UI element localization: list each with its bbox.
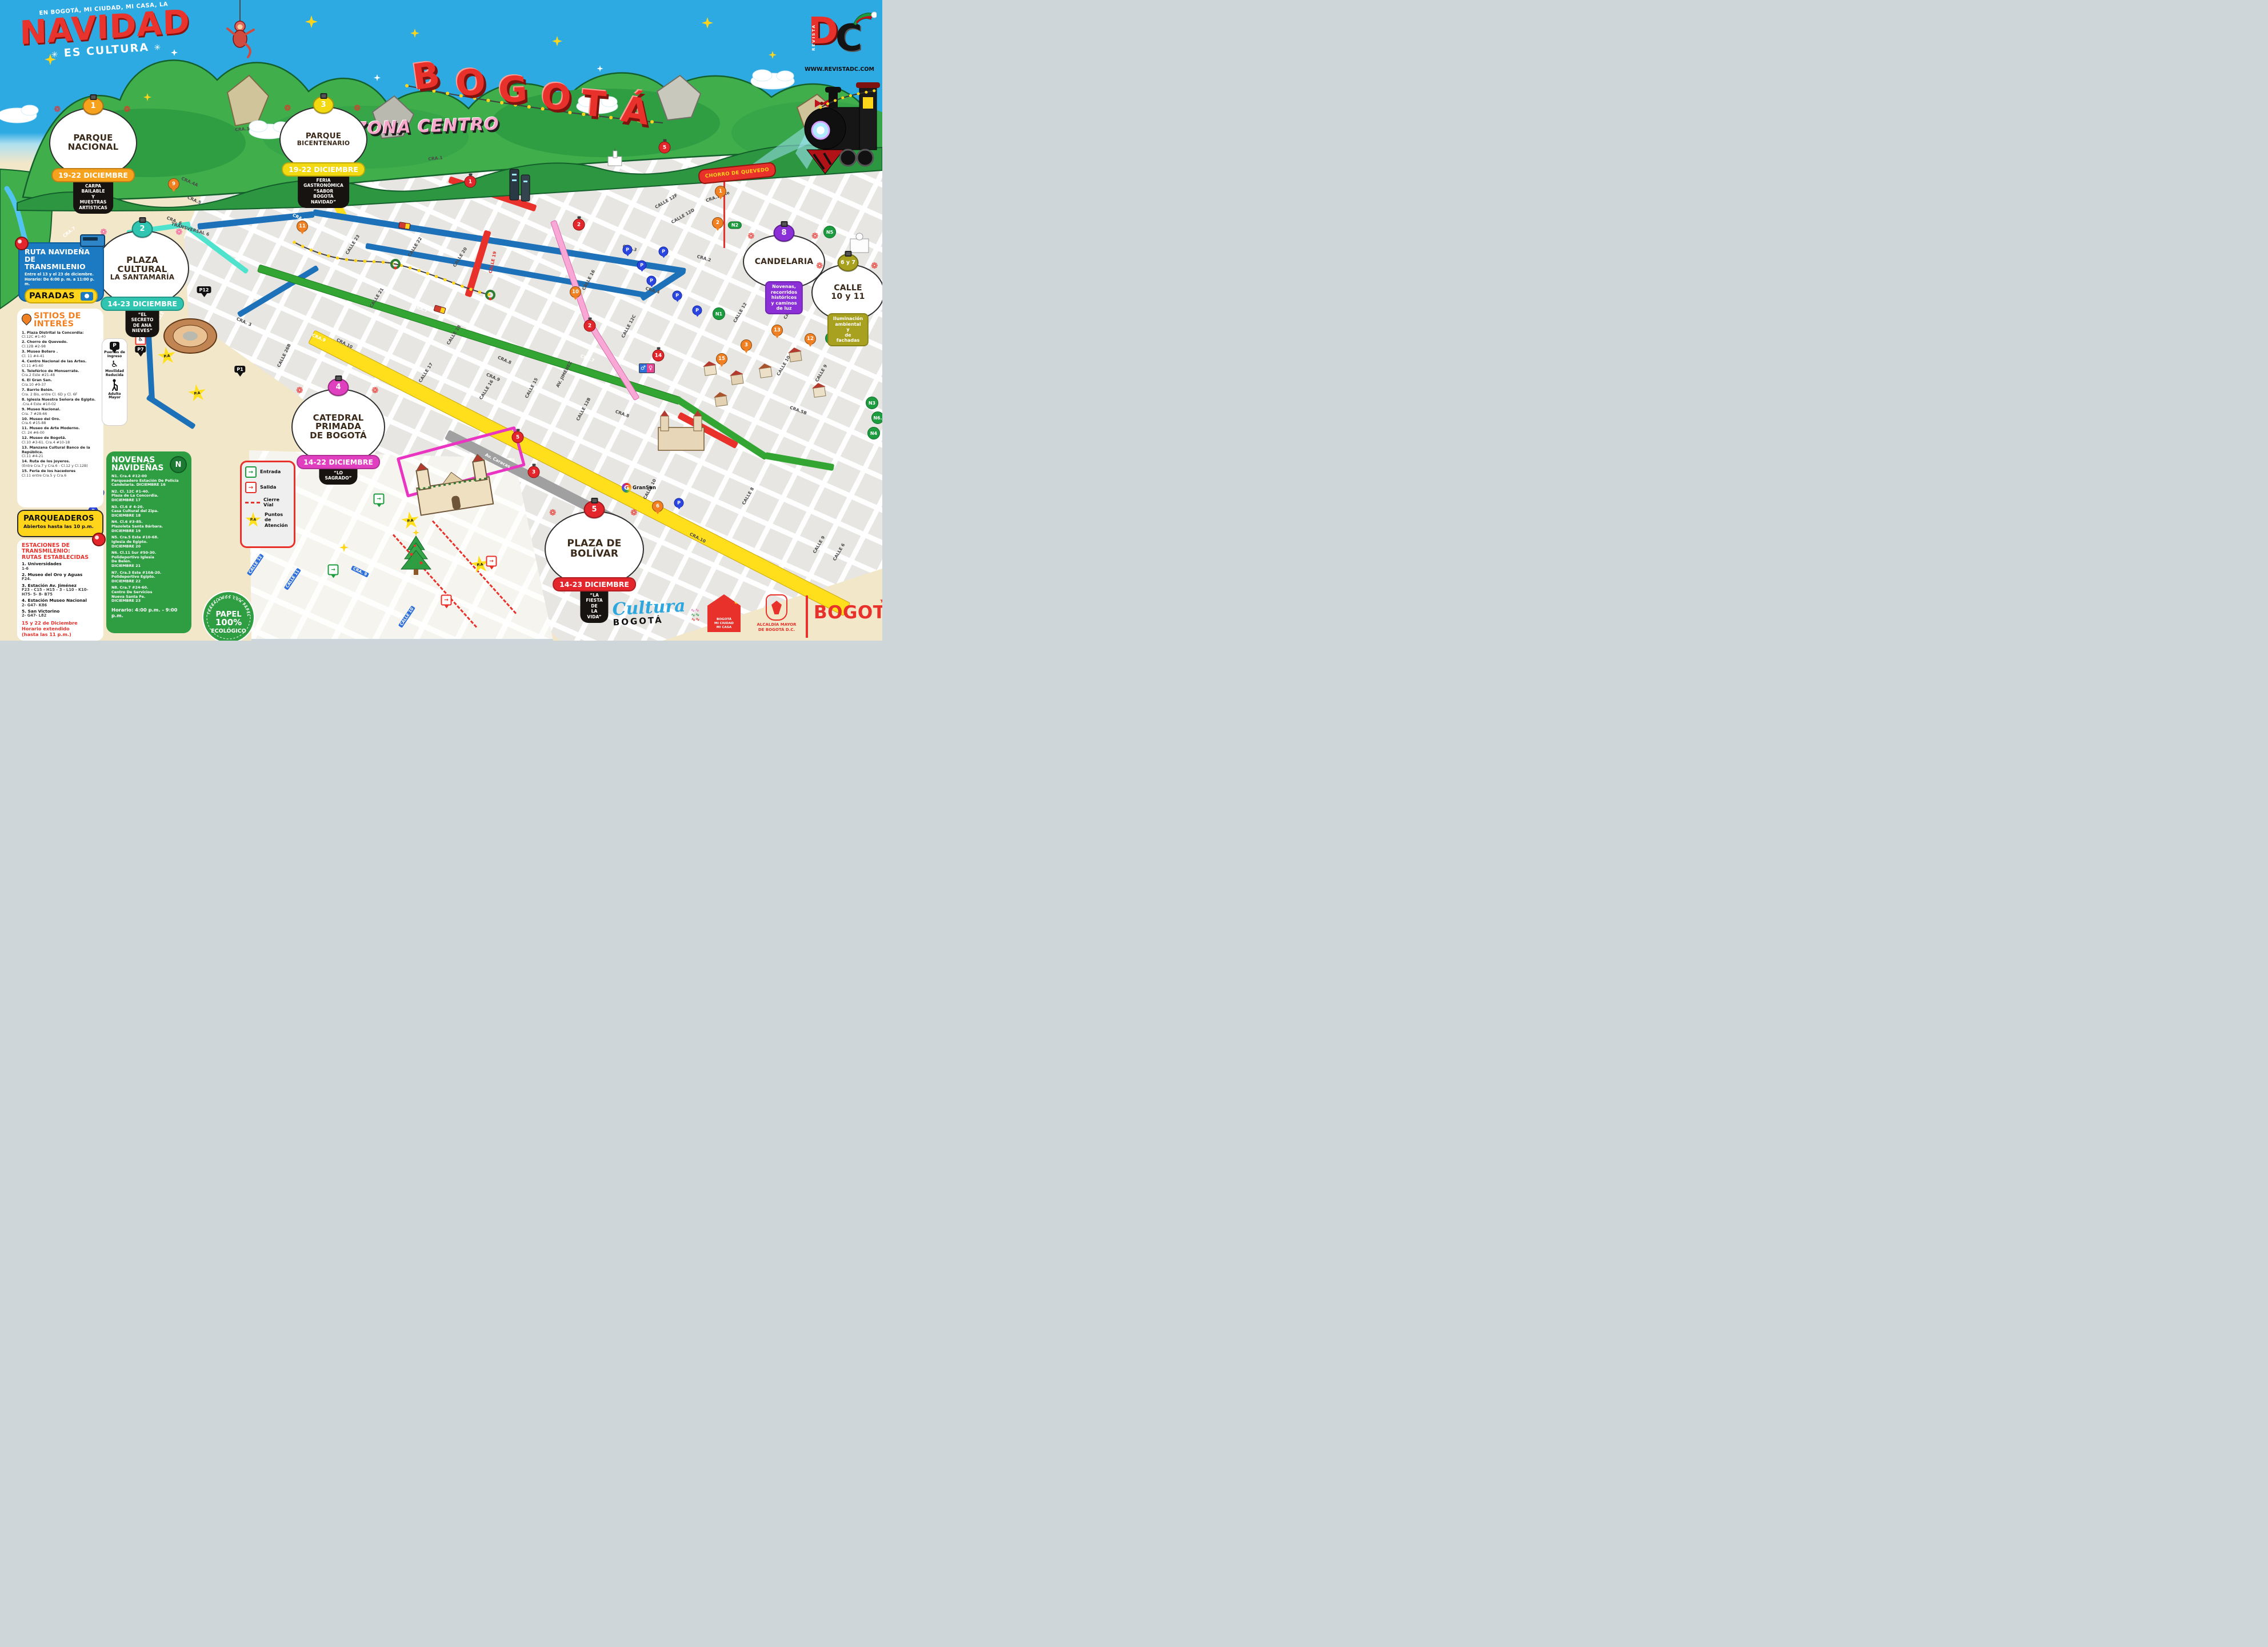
sitio-item: 5. Teleférico de Monserrate.Cra.2 Este #… (22, 369, 99, 378)
novena-badge-icon: N (170, 456, 187, 473)
sitios-list: 1. Plaza Distrital la Concordia:Cl.12C #… (22, 331, 99, 478)
ruta-schedule: Entre el 13 y el 23 de diciembre. Horari… (25, 272, 98, 286)
revista-vertical-text: REVISTA (811, 24, 816, 51)
bus-stop-icon (81, 292, 93, 301)
sitio-item: 14. Ruta de los joyeros.(Entre Cra.7 y C… (22, 459, 99, 468)
event-title-line: 10 y 11 (831, 293, 865, 301)
sparkle-icon: ✳ (154, 43, 162, 53)
event-date-pill: 14-22 DICIEMBRE (297, 455, 380, 469)
estacion-item: 4. Estación Museo Nacional2- G47- K86 (22, 598, 99, 607)
sitio-item: 11. Museo de Arte Moderno.Cl. 24 #6-00 (22, 426, 99, 435)
event-date-pill: 19-22 DICIEMBRE (282, 162, 365, 177)
sitio-item: 9. Museo Nacional.Cra. 7 #28-66 (22, 407, 99, 416)
poinsettia-icon: ❁ (630, 507, 638, 518)
sitio-item: 2. Chorro de Quevedo.Cl.12B #2-98 (22, 340, 99, 349)
event-bubble: CALLE10 y 11 (811, 264, 882, 321)
estacion-item: 3. Estación Av. JiménezF23 - C15 - H15 –… (22, 583, 99, 597)
poinsettia-icon: ❁ (371, 385, 379, 395)
sitios-de-interes-panel: SITIOS DE INTERÉS 1. Plaza Distrital la … (17, 309, 103, 507)
novena-item: N5. Cra.5 Este #10-68. Iglesia de Egipto… (111, 535, 186, 549)
event-title-line: CANDELARIA (755, 258, 814, 266)
sitio-item: 1. Plaza Distrital la Concordia:Cl.12C #… (22, 331, 99, 339)
event-date-pill: 19-22 DICIEMBRE (51, 168, 135, 182)
poinsettia-icon: ❁ (549, 507, 557, 518)
novenas-horario: Horario: 4:00 p.m. - 9:00 p.m. (111, 607, 186, 618)
puntos-label: Puntos de Atención (265, 512, 290, 528)
poinsettia-icon: ❁ (811, 231, 819, 241)
sitio-item: 8. Iglesia Nuestra Señora de Egipto..Cra… (22, 398, 99, 406)
estacion-item: 2. Museo del Oro y AguasF24. (22, 573, 99, 582)
event-number-badge: 2 (132, 220, 153, 238)
ornament-icon (92, 533, 106, 546)
sitio-item: 13. Manzana Cultural Banco de la Repúbli… (22, 446, 99, 459)
event-banner: Iluminación ambiental y de fachadas (827, 313, 869, 346)
paradas-pill: PARADAS (25, 289, 98, 303)
novena-item: N3. Cl.6 # 4-20. Casa Cultural del Zipa.… (111, 505, 186, 518)
wheelchair-icon: ♿ (111, 360, 118, 369)
entrada-label: Entrada (260, 469, 281, 474)
crest-icon (766, 594, 787, 621)
event-bubble: PLAZACULTURALLA SANTAMARÍA (95, 230, 189, 307)
squiggles-icon: ∿∿∿∿∿∿ (691, 608, 700, 622)
sitio-item: 15. Feria de los hacedoresCl.11 entre Cr… (22, 469, 99, 478)
movilidad-label: Movilidad Reducida (105, 370, 124, 378)
estaciones-panel: ESTACIONES DE TRANSMILENIO: RUTAS ESTABL… (17, 539, 103, 641)
event-number-badge: 3 (313, 96, 334, 114)
event-date-pill: 14-23 DICIEMBRE (553, 577, 636, 591)
estaciones-list: 1. Universidades1-62. Museo del Oro y Ag… (22, 562, 99, 618)
parqueaderos-subtitle: Abiertos hasta las 10 p.m. (23, 523, 97, 529)
ornament-icon (15, 237, 29, 250)
salida-label: Salida (260, 485, 276, 490)
novenas-panel: N NOVENAS NAVIDEÑAS N1. Cra.4 #12-00 Par… (106, 451, 191, 633)
event-banner: Novenas, recorridos históricos y caminos… (765, 281, 803, 314)
event-title-line: DE BOGOTÁ (310, 431, 367, 441)
adulto-label: Adulto Mayor (108, 393, 121, 401)
event-bubble: CATEDRALPRIMADADE BOGOTÁ (291, 389, 385, 465)
eco-stamp: TRABAJAMOS CON PAPEL RECICLADO PAPEL 100… (201, 590, 256, 641)
elf-hat-icon (851, 10, 877, 27)
parking-pin-icon: P (110, 342, 119, 350)
poinsettia-icon: ❁ (54, 104, 61, 114)
sitio-item: 10. Museo del Oro.Cra.6 #15-88 (22, 417, 99, 426)
sitio-item: 3. Museo Botero .Cl. 11 #4-41 (22, 350, 99, 358)
bus-illustration (80, 234, 105, 247)
event-number-badge: 1 (83, 97, 104, 115)
ruta-title: RUTA NAVIDEÑA DE TRANSMILENIO (25, 248, 98, 270)
accesos-panel: P Puertas de Ingreso ♿ Movilidad Reducid… (102, 338, 127, 426)
event-title-line: CALLE (834, 284, 862, 293)
eco-line2: 100% (215, 617, 242, 627)
event-desc-bar: FERIA GASTRONÓMICA “SABOR BOGOTÁ NAVIDAD… (298, 175, 349, 208)
alcaldia-mayor-logo: ALCALDÍA MAYOR DE BOGOTÁ D.C. (754, 594, 799, 633)
entrada-icon: → (245, 466, 257, 478)
novena-item: N2. Cl. 12C #1-40. Plaza de La Concordia… (111, 490, 186, 503)
sitio-item: 4. Centro Nacional de las Artes.Cl.11 #5… (22, 359, 99, 368)
poinsettia-icon: ❁ (816, 261, 823, 271)
cierre-vial-label: Cierre Víal (263, 497, 279, 508)
event-title-line: PARQUE (306, 132, 341, 140)
estaciones-title: ESTACIONES DE TRANSMILENIO: RUTAS ESTABL… (22, 543, 99, 561)
poinsettia-icon: ❁ (123, 104, 131, 114)
poinsettia-icon: ❁ (175, 227, 183, 237)
poinsettia-icon: ❁ (354, 103, 361, 113)
estacion-item: 1. Universidades1-6 (22, 562, 99, 571)
event-bubble: PLAZA DEBOLÍVAR (545, 511, 644, 587)
parqueaderos-title: PARQUEADEROS (23, 514, 97, 523)
salida-icon: → (245, 482, 257, 493)
event-number-badge: 5 (584, 501, 605, 518)
event-title-line: BOLÍVAR (570, 549, 618, 559)
cierre-vial-icon (245, 502, 260, 503)
event-number-badge: 6 y 7 (838, 254, 859, 271)
event-date-pill: 14-23 DICIEMBRE (101, 297, 184, 311)
estacion-item: 5. San Victorino2- G47- L82 (22, 609, 99, 618)
logo-divider (806, 595, 808, 638)
bogota-logo: BOGOTÁ (814, 602, 882, 623)
cultura-bogota-logo: Cultura BOGOTÁ ∿∿∿∿∿∿ (612, 598, 686, 628)
novena-item: N7. Cra.3 Este #10A-20. Polideportivo Eg… (111, 571, 186, 584)
map-pin-icon (19, 311, 33, 325)
sitio-item: 6. El Gran San.Cra.10 #9-37 (22, 378, 99, 387)
poinsettia-icon: ❁ (747, 231, 755, 241)
estaciones-note: 15 y 22 de Diciembre Horario extendido (… (22, 621, 99, 638)
parqueaderos-panel: PARQUEADEROS Abiertos hasta las 10 p.m. (17, 510, 103, 537)
punto-atencion-icon: P.A (245, 512, 261, 528)
event-title-line: LA SANTAMARÍA (110, 274, 174, 281)
map-legend-panel: →Entrada →Salida Cierre Víal P.APuntos d… (240, 461, 295, 548)
revista-dc-logo: D REVISTA C WWW.REVISTADC.COM (799, 14, 880, 83)
revista-url: WWW.REVISTADC.COM (799, 66, 880, 73)
elder-icon (110, 379, 119, 391)
event-number-badge: 4 (328, 378, 349, 396)
ruta-navidena-panel: RUTA NAVIDEÑA DE TRANSMILENIO Entre el 1… (18, 242, 104, 302)
sitio-item: 12. Museo de Bogotá.Cl.10 #3-61. Cra.4 #… (22, 436, 99, 445)
event-title-line: BICENTENARIO (297, 140, 350, 146)
novena-item: N1. Cra.4 #12-00 Parqueadero Estación De… (111, 474, 186, 487)
novena-item: N4. Cl.6 #3-85. Plazoleta Santa Bárbara.… (111, 520, 186, 533)
poinsettia-icon: ❁ (871, 261, 878, 271)
novenas-list: N1. Cra.4 #12-00 Parqueadero Estación De… (111, 474, 186, 603)
poinsettia-icon: ❁ (284, 103, 291, 113)
poinsettia-icon: ❁ (296, 385, 303, 395)
sitio-item: 7. Barrio Belén.Cra. 2 Bis, entre Cl. 6D… (22, 388, 99, 397)
event-desc-bar: “LA FIESTA DE LA VIDA” (580, 590, 608, 623)
event-number-badge: 8 (774, 224, 795, 242)
event-desc-bar: “LO SAGRADO” (319, 467, 357, 485)
event-title-line: NACIONAL (68, 143, 119, 152)
event-desc-bar: “EL SECRETO DE ANA NIEVES” (126, 309, 159, 337)
novena-item: N8. Cra.7 #24-60. Centro De Servicios Nu… (111, 586, 186, 603)
event-desc-bar: CARPA BAILABLE Y MUESTRAS ARTÍSTICAS (73, 181, 113, 214)
poster-map: CRA.1CRA.1CRA.1EsteCRA.4ACRA.4BCRA.5CRA.… (0, 0, 882, 641)
eco-line3: ECOLÓGICO (211, 627, 246, 634)
novena-item: N6. Cl.11 Sur #50-30. Polideportivo Igle… (111, 551, 186, 568)
sparkle-icon: ✳ (51, 50, 59, 60)
sitios-title: SITIOS DE INTERÉS (34, 313, 81, 329)
